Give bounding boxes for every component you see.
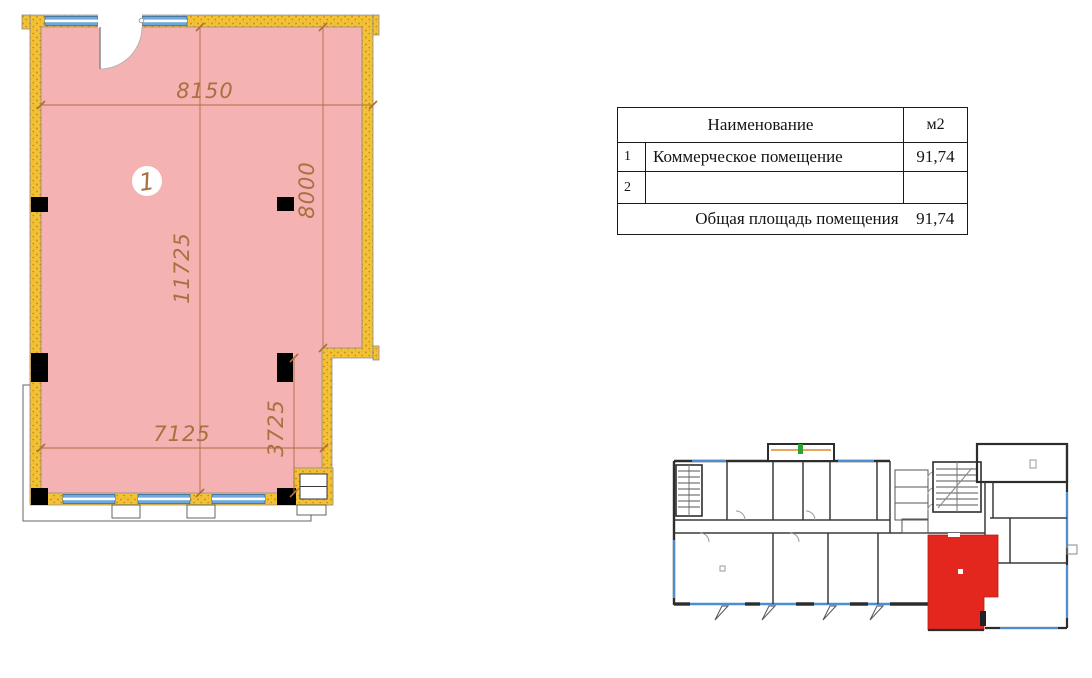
row-name (646, 172, 904, 204)
window-top-left (45, 17, 98, 26)
total-area-value: 91,74 (904, 204, 968, 235)
table-row: 2 (618, 172, 968, 204)
column (31, 197, 48, 212)
staircase-left (676, 465, 702, 516)
column (277, 197, 294, 211)
document-page: 8150 8000 11725 7125 3725 1 Наименование… (0, 0, 1092, 678)
table-row: 1 Коммерческое помещение 91,74 (618, 143, 968, 172)
partitions-lower (773, 533, 878, 604)
header-name: Наименование (618, 108, 904, 143)
staircase-right (933, 462, 981, 512)
header-area: м2 (904, 108, 968, 143)
area-table: Наименование м2 1 Коммерческое помещение… (617, 107, 968, 235)
table-header-row: Наименование м2 (618, 108, 968, 143)
core-wc (895, 470, 934, 533)
total-area-label: Общая площадь помещения (618, 204, 904, 235)
column (277, 488, 296, 505)
dimension-label-lower-right-height: 3725 (264, 399, 288, 456)
entrance-doors (715, 606, 883, 620)
roof-access-bump (768, 444, 834, 461)
dimension-label-top-width: 8150 (176, 79, 233, 103)
door-arcs (700, 511, 815, 542)
column (277, 353, 293, 382)
column (31, 488, 48, 505)
duct-shaft-box (294, 468, 333, 505)
row-number: 2 (618, 172, 646, 204)
row-name: Коммерческое помещение (646, 143, 904, 172)
dimension-label-full-height: 11725 (170, 232, 194, 304)
row-area (904, 172, 968, 204)
dimension-label-right-height: 8000 (295, 161, 319, 218)
column (31, 353, 48, 382)
row-area: 91,74 (904, 143, 968, 172)
row-number: 1 (618, 143, 646, 172)
window-top-right (142, 17, 187, 26)
dimension-label-bottom-width: 7125 (153, 422, 210, 446)
room-dot (720, 566, 725, 571)
overview-plan (660, 430, 1084, 640)
corridor (674, 520, 985, 533)
partitions-upper (727, 461, 890, 533)
windows-bottom (63, 495, 265, 504)
floor-plan: 8150 8000 11725 7125 3725 1 (0, 0, 400, 540)
highlighted-unit (928, 533, 998, 630)
table-footer-row: Общая площадь помещения 91,74 (618, 204, 968, 235)
